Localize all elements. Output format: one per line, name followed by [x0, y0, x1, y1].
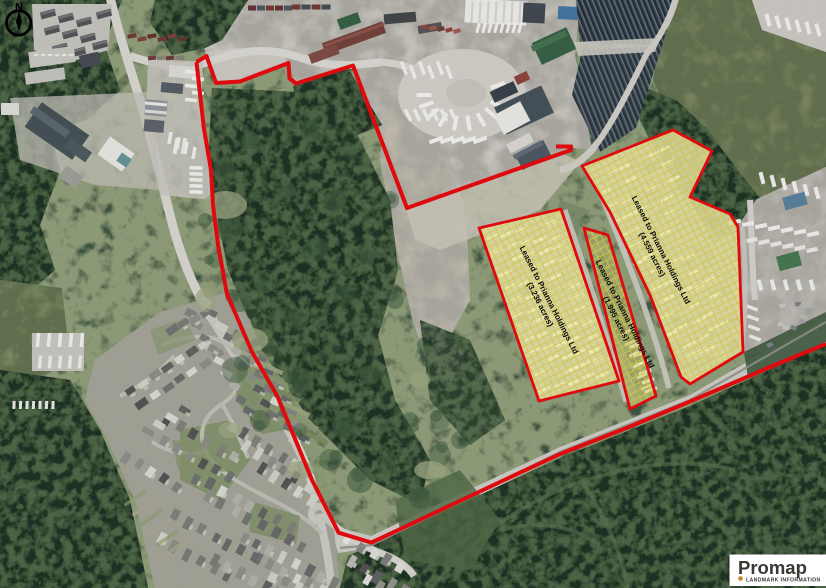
svg-text:N: N [15, 2, 23, 14]
svg-text:Promap: Promap [738, 557, 807, 578]
svg-text:LANDMARK INFORMATION: LANDMARK INFORMATION [746, 578, 821, 584]
svg-text:© Getmapping plc 2012: © Getmapping plc 2012 [7, 578, 60, 585]
